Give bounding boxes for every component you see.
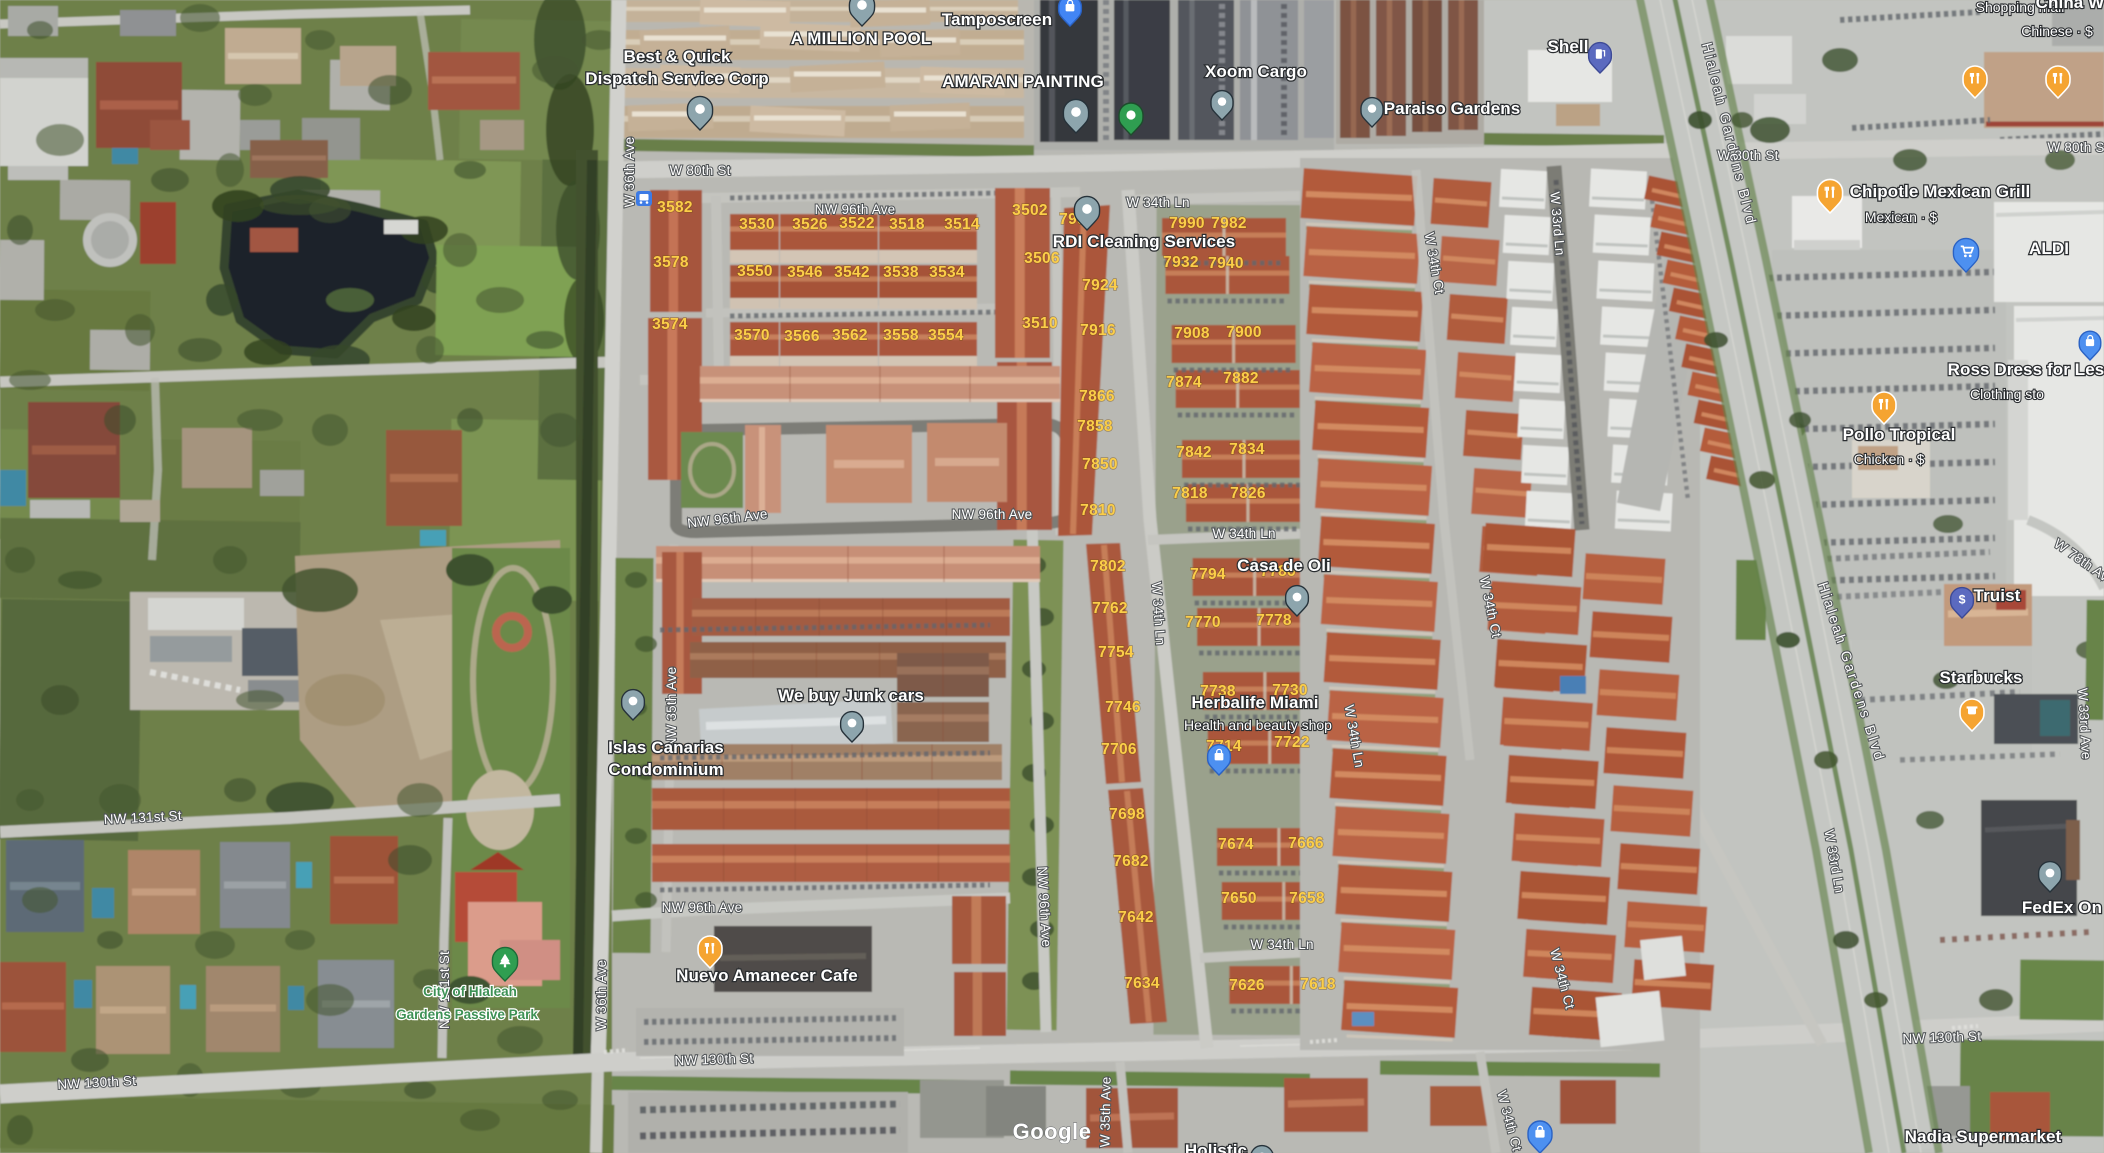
svg-text:3570: 3570 (734, 327, 770, 344)
svg-text:W 34th Ln: W 34th Ln (1212, 526, 1275, 541)
svg-text:7858: 7858 (1077, 418, 1113, 435)
svg-text:China W: China W (2036, 0, 2104, 12)
svg-text:Health and beauty shop: Health and beauty shop (1184, 717, 1332, 733)
svg-text:7810: 7810 (1080, 502, 1116, 519)
svg-text:7882: 7882 (1223, 370, 1259, 387)
svg-text:3530: 3530 (739, 216, 775, 233)
svg-text:7802: 7802 (1090, 558, 1126, 575)
svg-text:7746: 7746 (1105, 699, 1141, 716)
svg-text:7900: 7900 (1226, 324, 1262, 341)
svg-text:7666: 7666 (1288, 835, 1324, 852)
svg-text:Ross Dress for Les: Ross Dress for Les (1948, 360, 2104, 379)
svg-text:7650: 7650 (1221, 890, 1257, 907)
svg-text:3502: 3502 (1012, 202, 1048, 219)
svg-text:3522: 3522 (839, 215, 875, 232)
svg-text:7706: 7706 (1101, 741, 1137, 758)
svg-text:FedEx On: FedEx On (2022, 898, 2102, 917)
svg-text:Islas Canarias: Islas Canarias (608, 738, 724, 757)
svg-text:Paraiso Gardens: Paraiso Gardens (1384, 99, 1521, 118)
svg-text:7770: 7770 (1185, 614, 1221, 631)
svg-text:W 36th Ave: W 36th Ave (594, 960, 609, 1031)
svg-text:Tamposcreen: Tamposcreen (942, 10, 1052, 29)
svg-text:3538: 3538 (883, 264, 919, 281)
svg-text:3558: 3558 (883, 327, 919, 344)
svg-text:3518: 3518 (889, 216, 925, 233)
svg-text:3566: 3566 (784, 328, 820, 345)
svg-text:Condominium: Condominium (608, 760, 723, 779)
svg-text:7642: 7642 (1118, 909, 1154, 926)
svg-text:7698: 7698 (1109, 806, 1145, 823)
svg-text:3582: 3582 (657, 199, 693, 216)
svg-text:7866: 7866 (1079, 388, 1115, 405)
svg-text:Nuevo Amanecer Cafe: Nuevo Amanecer Cafe (676, 966, 858, 985)
svg-text:W 35th Ave: W 35th Ave (1097, 1076, 1113, 1147)
svg-text:7990: 7990 (1169, 215, 1205, 232)
svg-text:3574: 3574 (652, 316, 688, 333)
svg-text:7658: 7658 (1289, 890, 1325, 907)
svg-text:7932: 7932 (1163, 254, 1199, 271)
svg-text:Clothing sto: Clothing sto (1970, 386, 2044, 402)
svg-text:7722: 7722 (1274, 734, 1310, 751)
svg-text:Truist: Truist (1974, 586, 2021, 605)
svg-text:NW 130th St: NW 130th St (1902, 1029, 1981, 1047)
svg-text:W 34th Ln: W 34th Ln (1126, 195, 1189, 210)
svg-text:Chipotle Mexican Grill: Chipotle Mexican Grill (1850, 182, 2031, 201)
svg-text:7634: 7634 (1124, 975, 1160, 992)
svg-text:Holistic: Holistic (1185, 1141, 1247, 1153)
svg-text:RDI Cleaning Services: RDI Cleaning Services (1053, 232, 1236, 251)
svg-text:Gardens Passive Park: Gardens Passive Park (396, 1007, 538, 1022)
svg-text:W 80th St: W 80th St (669, 163, 730, 178)
svg-text:7850: 7850 (1082, 456, 1118, 473)
svg-text:3510: 3510 (1022, 315, 1058, 332)
svg-text:3506: 3506 (1024, 250, 1060, 267)
svg-text:3554: 3554 (928, 327, 964, 344)
svg-text:7924: 7924 (1082, 277, 1118, 294)
svg-text:Nadia Supermarket: Nadia Supermarket (1905, 1127, 2062, 1146)
svg-text:7778: 7778 (1256, 612, 1292, 629)
svg-text:Shell: Shell (1547, 37, 1588, 56)
svg-text:NW 96th Ave: NW 96th Ave (662, 900, 743, 915)
svg-text:We buy Junk cars: We buy Junk cars (778, 686, 924, 705)
svg-text:7762: 7762 (1092, 600, 1128, 617)
svg-text:7754: 7754 (1098, 644, 1134, 661)
svg-text:Chinese · $: Chinese · $ (2021, 23, 2093, 39)
svg-text:7982: 7982 (1211, 215, 1247, 232)
svg-text:7940: 7940 (1208, 255, 1244, 272)
svg-text:7626: 7626 (1229, 977, 1265, 994)
svg-text:W 36th Ave: W 36th Ave (622, 137, 637, 208)
svg-text:3546: 3546 (787, 264, 823, 281)
svg-text:7908: 7908 (1174, 325, 1210, 342)
svg-text:3578: 3578 (653, 254, 689, 271)
svg-text:Herbalife Miami: Herbalife Miami (1191, 693, 1318, 712)
svg-text:3562: 3562 (832, 327, 868, 344)
svg-text:7916: 7916 (1080, 322, 1116, 339)
svg-text:7826: 7826 (1230, 485, 1266, 502)
svg-text:7818: 7818 (1172, 485, 1208, 502)
svg-text:$: $ (1959, 592, 1966, 606)
svg-text:7874: 7874 (1166, 374, 1202, 391)
svg-text:Best & Quick: Best & Quick (623, 47, 730, 66)
svg-text:Xoom Cargo: Xoom Cargo (1205, 62, 1307, 81)
svg-text:3526: 3526 (792, 216, 828, 233)
svg-text:City of Hialeah: City of Hialeah (423, 984, 517, 999)
svg-text:7682: 7682 (1113, 853, 1149, 870)
svg-text:7842: 7842 (1176, 444, 1212, 461)
svg-text:Casa de Oli: Casa de Oli (1237, 556, 1331, 575)
svg-text:AMARAN PAINTING: AMARAN PAINTING (942, 72, 1104, 91)
svg-text:W 80th St: W 80th St (2047, 140, 2104, 155)
svg-text:W 34th Ln: W 34th Ln (1250, 937, 1313, 952)
svg-text:7618: 7618 (1300, 976, 1336, 993)
svg-text:7674: 7674 (1218, 836, 1254, 853)
svg-text:NW 96th Ave: NW 96th Ave (952, 507, 1033, 522)
svg-text:NW 35th Ave: NW 35th Ave (664, 667, 679, 748)
svg-text:Chicken · $: Chicken · $ (1854, 451, 1925, 467)
svg-text:Dispatch Service Corp: Dispatch Service Corp (585, 69, 769, 88)
svg-text:Google: Google (1013, 1119, 1092, 1144)
svg-text:Starbucks: Starbucks (1939, 668, 2022, 687)
svg-text:3542: 3542 (834, 264, 870, 281)
svg-text:Pollo Tropical: Pollo Tropical (1843, 425, 1956, 444)
svg-text:7834: 7834 (1229, 441, 1265, 458)
svg-text:3550: 3550 (737, 263, 773, 280)
svg-text:3534: 3534 (929, 264, 965, 281)
svg-text:Mexican · $: Mexican · $ (1865, 209, 1938, 225)
svg-text:NW 130th St: NW 130th St (674, 1051, 753, 1069)
svg-text:ALDI: ALDI (2029, 239, 2069, 258)
svg-text:7794: 7794 (1190, 566, 1226, 583)
svg-text:A MILLION POOL: A MILLION POOL (791, 29, 932, 48)
svg-text:3514: 3514 (944, 216, 980, 233)
